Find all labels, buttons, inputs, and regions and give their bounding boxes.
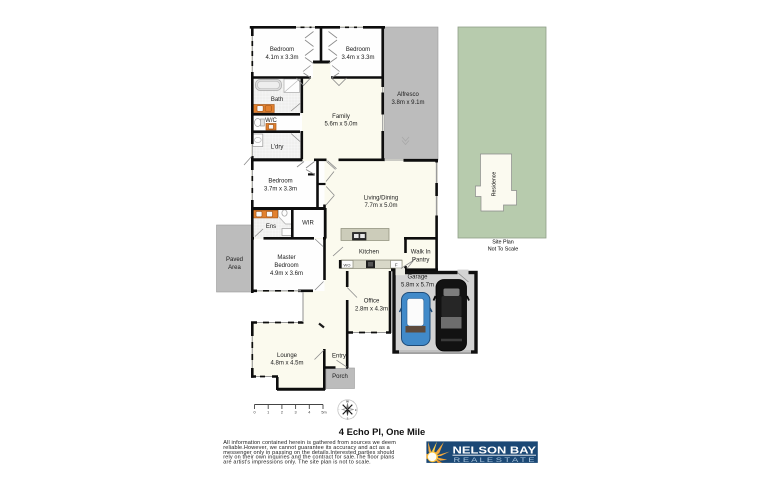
- svg-text:2: 2: [281, 411, 283, 415]
- svg-text:S: S: [347, 416, 349, 420]
- svg-text:Bedroom: Bedroom: [268, 179, 292, 185]
- svg-text:Bedroom: Bedroom: [346, 47, 370, 53]
- svg-text:Family: Family: [332, 114, 350, 120]
- svg-text:Ens: Ens: [266, 224, 276, 230]
- svg-text:NELSON BAY: NELSON BAY: [453, 445, 537, 456]
- svg-text:3.8m x 9.1m: 3.8m x 9.1m: [391, 100, 424, 106]
- svg-text:Paved: Paved: [226, 257, 243, 263]
- svg-text:R E A L E S T A T E: R E A L E S T A T E: [454, 458, 535, 464]
- svg-text:Porch: Porch: [332, 374, 348, 380]
- svg-text:Kitchen: Kitchen: [359, 250, 379, 256]
- svg-text:4.8m x 4.5m: 4.8m x 4.5m: [270, 361, 303, 367]
- svg-text:4.1m x 3.3m: 4.1m x 3.3m: [265, 55, 298, 61]
- svg-text:Walk In: Walk In: [411, 250, 431, 256]
- svg-text:1: 1: [267, 411, 269, 415]
- svg-text:5.8m x 5.7m: 5.8m x 5.7m: [401, 283, 434, 289]
- svg-text:Site Plan: Site Plan: [492, 240, 514, 246]
- svg-text:3.4m x 3.3m: 3.4m x 3.3m: [341, 55, 374, 61]
- svg-text:Office: Office: [364, 299, 380, 305]
- svg-text:Residence: Residence: [492, 172, 498, 197]
- svg-text:Entry: Entry: [332, 354, 346, 360]
- svg-text:0: 0: [253, 411, 255, 415]
- svg-text:Pantry: Pantry: [412, 258, 429, 264]
- svg-text:2.8m x 4.3m: 2.8m x 4.3m: [355, 307, 388, 313]
- svg-text:WIR: WIR: [302, 221, 314, 227]
- svg-text:L'dry: L'dry: [271, 145, 284, 151]
- svg-text:4 Echo Pl, One Mile: 4 Echo Pl, One Mile: [339, 426, 425, 437]
- svg-text:E: E: [355, 408, 357, 412]
- svg-text:Bath: Bath: [271, 97, 283, 103]
- svg-text:F: F: [395, 263, 398, 268]
- svg-text:Living/Dining: Living/Dining: [364, 196, 398, 202]
- svg-text:Not To Scale: Not To Scale: [488, 247, 518, 253]
- svg-text:Master: Master: [277, 255, 295, 261]
- svg-text:Bedroom: Bedroom: [274, 263, 298, 269]
- svg-text:W/C: W/C: [265, 118, 277, 124]
- svg-text:Area: Area: [228, 265, 241, 271]
- svg-text:3.7m x 3.3m: 3.7m x 3.3m: [264, 187, 297, 193]
- svg-text:N: N: [346, 400, 348, 404]
- svg-text:Garage: Garage: [407, 275, 428, 281]
- svg-text:WO: WO: [344, 263, 351, 268]
- svg-text:Alfresco: Alfresco: [397, 92, 419, 98]
- svg-text:4.9m x 3.6m: 4.9m x 3.6m: [270, 271, 303, 277]
- svg-text:5m: 5m: [321, 411, 326, 415]
- svg-text:Bedroom: Bedroom: [270, 47, 294, 53]
- svg-text:7.7m x 5.0m: 7.7m x 5.0m: [364, 203, 397, 209]
- svg-text:3: 3: [295, 411, 297, 415]
- svg-text:are artist's impressions only.: are artist's impressions only. The site …: [223, 460, 371, 466]
- svg-text:5.6m x 5.0m: 5.6m x 5.0m: [324, 122, 357, 128]
- svg-text:Lounge: Lounge: [277, 353, 298, 359]
- svg-text:4: 4: [308, 411, 310, 415]
